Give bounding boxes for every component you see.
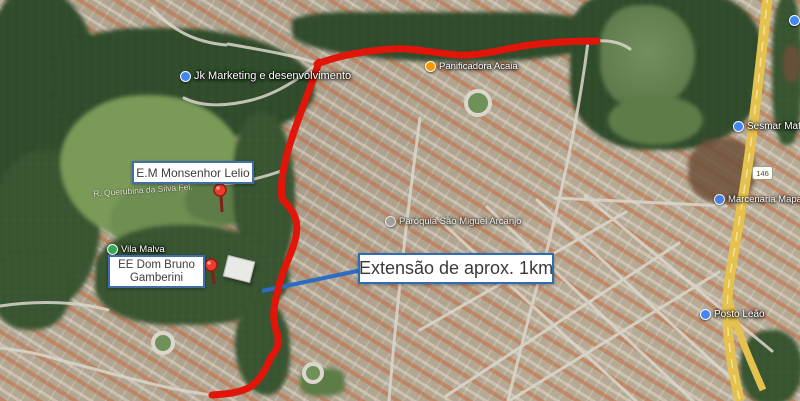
poi-label: Vila Malva	[121, 244, 165, 255]
callout-text: Extensão de aprox. 1km	[359, 258, 553, 279]
map-pin-monsenhor	[214, 184, 226, 212]
callout-extension-length: Extensão de aprox. 1km	[358, 253, 554, 284]
map-overlay	[0, 0, 800, 401]
poi-edge-clipped	[789, 15, 800, 26]
poi-label: Sesmar Mater	[747, 121, 800, 132]
poi-vila-malva: Vila Malva	[107, 244, 165, 255]
poi-posto-leao: Posto Leão	[700, 309, 765, 320]
poi-label: Jk Marketing e desenvolvimento	[194, 70, 351, 82]
callout-text-line2: Gamberini	[130, 272, 183, 285]
poi-icon	[789, 15, 800, 26]
poi-jk-marketing: Jk Marketing e desenvolvimento	[180, 70, 351, 82]
poi-icon	[714, 194, 725, 205]
callout-text-line1: EE Dom Bruno	[118, 259, 195, 272]
poi-icon	[733, 121, 744, 132]
poi-label: Posto Leão	[714, 309, 765, 320]
poi-icon	[700, 309, 711, 320]
poi-label: Paróquia São Miguel Arcanjo	[399, 216, 522, 227]
poi-icon	[107, 244, 118, 255]
poi-paroquia: Paróquia São Miguel Arcanjo	[385, 216, 522, 227]
poi-icon	[180, 71, 191, 82]
callout-dom-bruno-gamberini: EE Dom Bruno Gamberini	[108, 255, 205, 288]
callout-monsenhor-lelio: E.M Monsenhor Lelio	[132, 161, 254, 184]
poi-sesmar: Sesmar Mater	[733, 121, 800, 132]
poi-panificadora: Panificadora Acaia	[425, 61, 518, 72]
roundabouts	[153, 91, 490, 382]
street-roads	[0, 8, 772, 401]
map-pin-gamberini	[205, 259, 217, 284]
poi-label: Panificadora Acaia	[439, 61, 518, 72]
poi-marcenaria: Marcenaria Mapa Leilões	[714, 194, 800, 205]
road-shield-146: 146	[752, 166, 773, 180]
poi-label: Marcenaria Mapa Leilões	[728, 194, 800, 205]
poi-icon	[385, 216, 396, 227]
map-screenshot: Jk Marketing e desenvolvimento Panificad…	[0, 0, 800, 401]
poi-icon	[425, 61, 436, 72]
callout-text: E.M Monsenhor Lelio	[136, 166, 249, 180]
